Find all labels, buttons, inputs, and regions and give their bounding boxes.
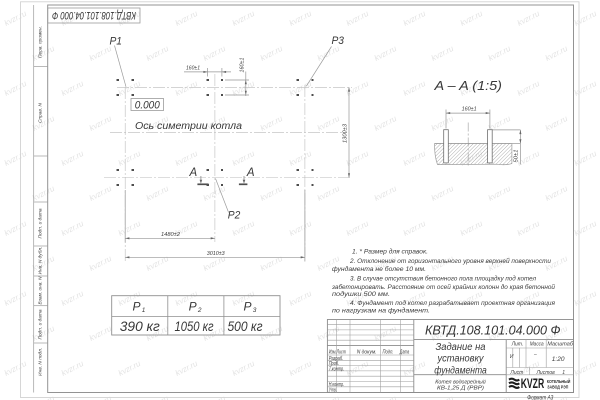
svg-text:2: 2 — [197, 307, 202, 314]
svg-text:Т.контр.: Т.контр. — [329, 366, 345, 372]
svg-text:1: 1 — [142, 307, 146, 314]
svg-text:И: И — [510, 354, 514, 360]
svg-text:1050 кг: 1050 кг — [175, 318, 214, 334]
svg-text:Перв. примен.: Перв. примен. — [38, 26, 44, 58]
svg-text:фундамента не более 10 мм.: фундамента не более 10 мм. — [332, 265, 426, 273]
svg-text:1: 1 — [562, 370, 565, 376]
svg-text:160±1: 160±1 — [186, 66, 200, 72]
svg-text:P: P — [189, 300, 197, 314]
svg-text:P: P — [244, 300, 252, 314]
svg-text:Подп. и дата: Подп. и дата — [38, 208, 44, 238]
svg-text:KVZR: KVZR — [521, 376, 545, 391]
svg-text:Подп.: Подп. — [383, 350, 394, 356]
svg-text:2. Отклонение от горизонтально: 2. Отклонение от горизонтального уровня … — [349, 257, 551, 265]
svg-text:A – A (1:5): A – A (1:5) — [433, 78, 502, 93]
svg-text:1300±3: 1300±3 — [343, 123, 349, 143]
svg-text:Масштаб: Масштаб — [547, 342, 573, 348]
svg-text:50±1: 50±1 — [514, 150, 520, 163]
svg-text:P3: P3 — [332, 35, 345, 47]
svg-text:КВТД.108.101.04.000 Ф: КВТД.108.101.04.000 Ф — [52, 9, 136, 21]
svg-text:4. Фундамент под котел разраба: 4. Фундамент под котел разрабатывает про… — [350, 299, 555, 307]
svg-text:фундамента: фундамента — [434, 364, 487, 376]
svg-text:390 кг: 390 кг — [120, 318, 160, 334]
svg-text:ЗАВОД РЭП: ЗАВОД РЭП — [547, 384, 568, 389]
svg-text:P1: P1 — [110, 35, 123, 47]
svg-text:0.000: 0.000 — [135, 100, 161, 112]
svg-text:Взам. инв. N: Взам. инв. N — [38, 276, 44, 304]
svg-text:1480±2: 1480±2 — [161, 232, 181, 238]
svg-text:установку: установку — [437, 354, 485, 365]
svg-text:N докум.: N докум. — [357, 350, 377, 356]
svg-text:3. В случае отсутствия бетонно: 3. В случае отсутствия бетонного пола пл… — [350, 275, 536, 283]
svg-text:P2: P2 — [228, 210, 241, 222]
svg-text:Инв. N дубл.: Инв. N дубл. — [38, 247, 44, 275]
svg-text:Изм.Лист: Изм.Лист — [329, 350, 346, 356]
svg-text:P: P — [133, 300, 141, 314]
svg-text:Листов: Листов — [536, 370, 556, 376]
svg-text:A: A — [189, 167, 198, 179]
svg-text:3: 3 — [253, 307, 257, 314]
svg-text:Лист: Лист — [509, 370, 523, 376]
svg-text:Масса: Масса — [530, 342, 544, 348]
svg-text:500 кг: 500 кг — [228, 318, 263, 334]
svg-text:КВТД.108.101.04.000 Ф: КВТД.108.101.04.000 Ф — [425, 322, 561, 337]
svg-text:Ось симетрии котла: Ось симетрии котла — [135, 121, 242, 132]
svg-text:по нагрузкам на фундамент.: по нагрузкам на фундамент. — [332, 307, 430, 315]
svg-text:Формат А3: Формат А3 — [527, 395, 554, 400]
svg-text:Утв.: Утв. — [329, 387, 337, 393]
svg-text:КВ-1,25 Д (РВР): КВ-1,25 Д (РВР) — [437, 386, 484, 392]
svg-text:Справ. N: Справ. N — [38, 102, 44, 123]
svg-text:160±1: 160±1 — [240, 58, 246, 73]
svg-text:забетонировать. Расстояние от: забетонировать. Расстояние от осей крайн… — [331, 283, 555, 291]
svg-text:Котел водогрейный: Котел водогрейный — [435, 378, 486, 385]
svg-text:160±1: 160±1 — [462, 106, 477, 112]
svg-text:Лит.: Лит. — [511, 342, 524, 348]
svg-text:–: – — [533, 352, 537, 358]
svg-text:Дата: Дата — [399, 350, 409, 356]
svg-text:подушки 500 мм.: подушки 500 мм. — [332, 290, 390, 298]
svg-text:A: A — [246, 167, 255, 179]
svg-text:1:20: 1:20 — [552, 356, 565, 363]
svg-text:Инв. N подл.: Инв. N подл. — [38, 348, 44, 376]
svg-text:1. * Размер для справок.: 1. * Размер для справок. — [352, 247, 428, 255]
svg-text:Подп. и дата: Подп. и дата — [38, 309, 44, 339]
svg-text:3010±3: 3010±3 — [207, 251, 226, 257]
svg-text:Задание на: Задание на — [436, 342, 486, 353]
